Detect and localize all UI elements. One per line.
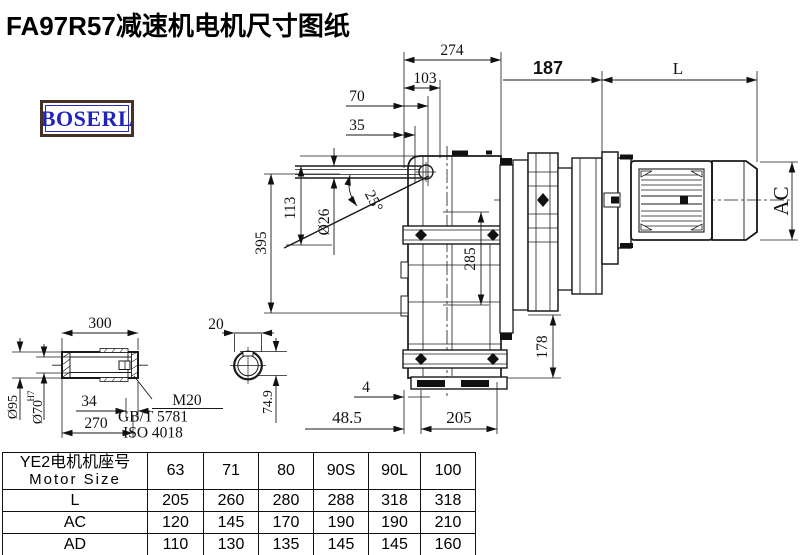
- table-row-AD: AD 110 130 135 145 145 160: [3, 534, 476, 555]
- cell: 110: [148, 534, 204, 555]
- cell: 160: [421, 534, 476, 555]
- cell: 190: [314, 512, 369, 534]
- dim-phi26-label: Ø26: [316, 208, 333, 235]
- size-col: 71: [204, 453, 259, 490]
- table-row-L: L 205 260 280 288 318 318: [3, 490, 476, 512]
- row-label: L: [3, 490, 148, 512]
- dim-34-label: 34: [81, 393, 97, 410]
- table-header-row: YE2电机机座号 Motor Size 63 71 80 90S 90L 100: [3, 453, 476, 490]
- table-row-AC: AC 120 145 170 190 190 210: [3, 512, 476, 534]
- cell: 120: [148, 512, 204, 534]
- dim-285-label: 285: [462, 247, 479, 271]
- dim-270-label: 270: [84, 415, 108, 432]
- motor-size-table: YE2电机机座号 Motor Size 63 71 80 90S 90L 100…: [2, 452, 476, 555]
- header-en: Motor Size: [3, 472, 147, 489]
- cell: 260: [204, 490, 259, 512]
- size-col: 63: [148, 453, 204, 490]
- dim-113-label: 113: [282, 196, 299, 219]
- dim-178-label: 178: [534, 335, 551, 359]
- row-label: AC: [3, 512, 148, 534]
- dim-48_5-label: 48.5: [332, 408, 362, 427]
- cell: 205: [148, 490, 204, 512]
- dim-35-label: 35: [349, 117, 365, 134]
- cell: 280: [259, 490, 314, 512]
- shaft-end-view: 20 74.9: [208, 316, 287, 423]
- dim-205-label: 205: [446, 408, 472, 427]
- cell: 288: [314, 490, 369, 512]
- callout-m20-label: M20: [172, 392, 202, 409]
- cell: 130: [204, 534, 259, 555]
- cell: 170: [259, 512, 314, 534]
- dim-300-label: 300: [88, 315, 112, 332]
- fan-cover: [712, 161, 757, 240]
- dim-4-label: 4: [362, 379, 370, 396]
- header-motor-size: YE2电机机座号 Motor Size: [3, 453, 148, 490]
- cell: 318: [369, 490, 421, 512]
- dim-187-label: 187: [533, 58, 563, 78]
- cell: 210: [421, 512, 476, 534]
- cell: 145: [369, 534, 421, 555]
- dim-274-label: 274: [440, 42, 464, 59]
- dim-phi70-label: Ø70: [31, 400, 46, 424]
- size-col: 100: [421, 453, 476, 490]
- m20-callout: M20 GB/T 5781 ISO 4018: [118, 376, 223, 442]
- dim-20-label: 20: [208, 316, 224, 333]
- cell: 145: [204, 512, 259, 534]
- size-col: 90L: [369, 453, 421, 490]
- dim-phi70-tolerance-label: H7: [26, 390, 36, 401]
- dim-395-label: 395: [253, 231, 270, 255]
- dim-phi95-label: Ø95: [6, 395, 21, 419]
- cell: 190: [369, 512, 421, 534]
- dim-70-label: 70: [349, 88, 365, 105]
- dim-74_9-label: 74.9: [260, 390, 275, 414]
- motor-assembly: [500, 152, 757, 340]
- size-col: 90S: [314, 453, 369, 490]
- row-label: AD: [3, 534, 148, 555]
- callout-iso-label: ISO 4018: [123, 425, 183, 442]
- header-cn: YE2电机机座号: [3, 454, 147, 472]
- drawing-page: FA97R57减速机电机尺寸图纸 BOSERL: [0, 0, 800, 555]
- dim-25deg-label: 25°: [361, 188, 386, 215]
- cell: 145: [314, 534, 369, 555]
- callout-gbt-label: GB/T 5781: [118, 409, 188, 426]
- cell: 318: [421, 490, 476, 512]
- dim-L-label: L: [673, 59, 683, 78]
- dim-103-label: 103: [413, 70, 437, 87]
- cell: 135: [259, 534, 314, 555]
- technical-drawing: 25°: [0, 0, 800, 452]
- dim-AC-label: AC: [769, 186, 793, 215]
- size-col: 80: [259, 453, 314, 490]
